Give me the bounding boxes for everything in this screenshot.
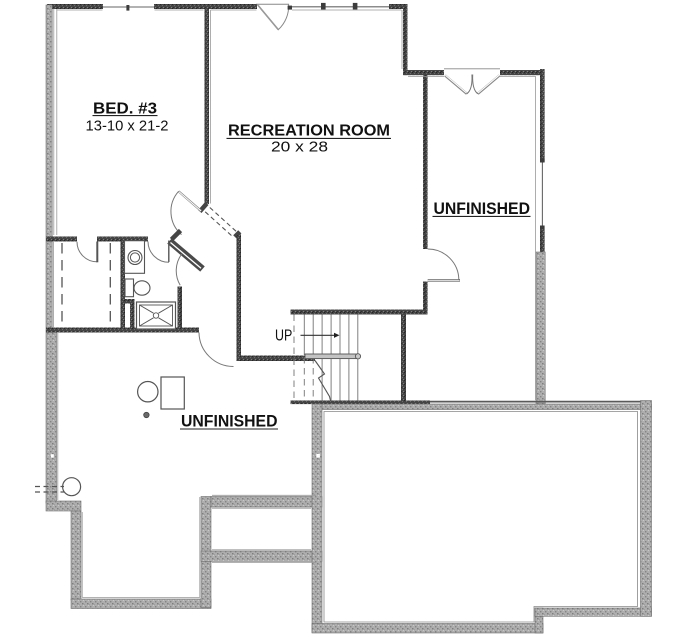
- svg-text:13-10 x 21-2: 13-10 x 21-2: [86, 118, 169, 135]
- svg-text:UP: UP: [275, 327, 292, 344]
- svg-text:UNFINISHED: UNFINISHED: [181, 412, 278, 431]
- svg-text:20 x 28: 20 x 28: [271, 139, 328, 156]
- svg-text:RECREATION ROOM: RECREATION ROOM: [228, 123, 390, 140]
- svg-text:UNFINISHED: UNFINISHED: [434, 199, 531, 218]
- svg-text:BED. #3: BED. #3: [93, 101, 157, 118]
